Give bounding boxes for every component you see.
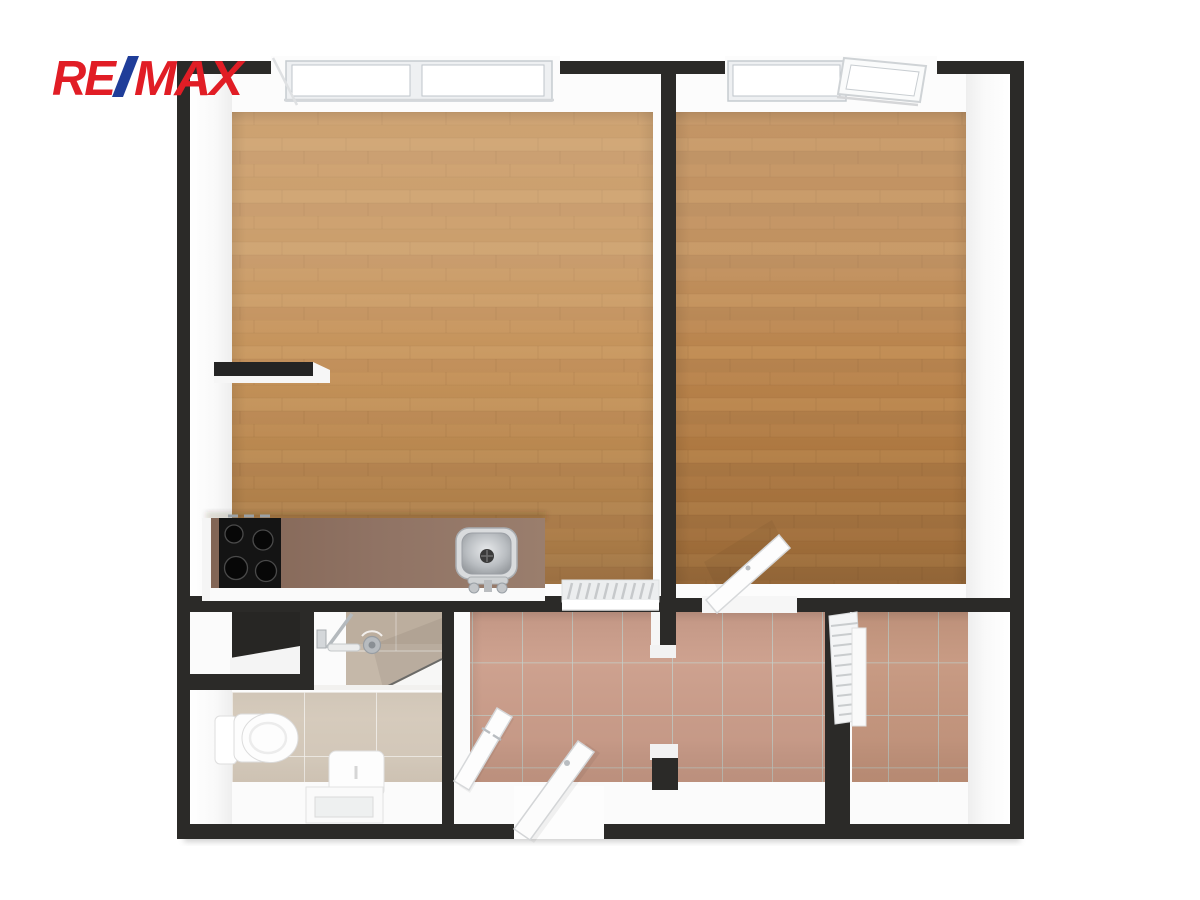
svg-text:MAX: MAX — [134, 52, 247, 106]
svg-text:RE: RE — [52, 52, 117, 106]
